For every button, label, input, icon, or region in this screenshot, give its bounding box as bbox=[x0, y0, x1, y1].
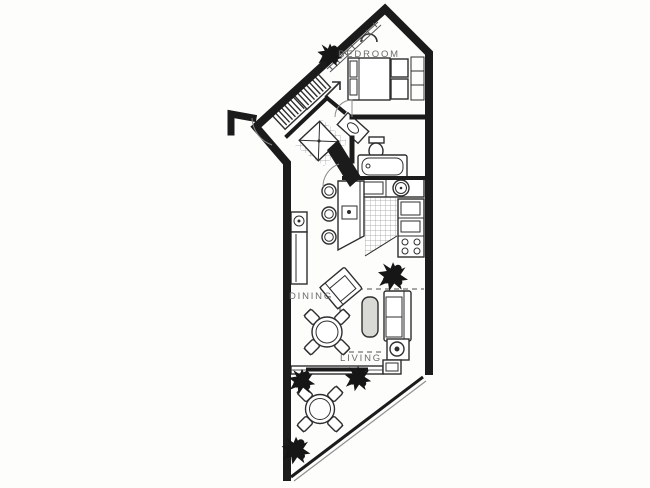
closet-shelves bbox=[411, 57, 424, 100]
armchair bbox=[320, 267, 363, 309]
bar-stool bbox=[322, 207, 336, 221]
planter-box bbox=[383, 360, 401, 374]
dining-label: DINING bbox=[289, 291, 333, 302]
breakfast-bar bbox=[338, 181, 364, 250]
bed bbox=[348, 58, 390, 100]
bathtub bbox=[358, 155, 407, 178]
outer-wall-left bbox=[256, 127, 287, 477]
end-table-with-lamp bbox=[387, 339, 409, 360]
nightstand bbox=[391, 79, 408, 99]
kitchen-right-counter bbox=[398, 199, 424, 257]
hall-bedroom-wall bbox=[327, 98, 344, 112]
bedroom-label: BEDROOM bbox=[338, 49, 400, 60]
potted-plant bbox=[378, 262, 408, 291]
bedroom bbox=[348, 34, 424, 100]
patio-set bbox=[297, 386, 343, 432]
entry-stub-wall bbox=[231, 114, 253, 132]
nightstand bbox=[391, 59, 408, 77]
scanned-floor-plan-page: BEDROOM DINING LIVING bbox=[0, 0, 650, 488]
living-label: LIVING bbox=[340, 353, 382, 364]
hall-door-swing bbox=[323, 164, 339, 187]
kitchen-top-counter bbox=[356, 179, 424, 197]
coffee-table bbox=[362, 297, 378, 337]
bar-stool bbox=[322, 184, 336, 198]
wet-bar bbox=[291, 212, 307, 284]
floor-plan-canvas: BEDROOM DINING LIVING bbox=[0, 0, 650, 488]
buffet-cabinet bbox=[291, 232, 307, 284]
dining-set bbox=[304, 309, 350, 355]
kitchen-tile-floor bbox=[365, 198, 397, 256]
sofa bbox=[384, 291, 411, 341]
bar-stool bbox=[322, 230, 336, 244]
